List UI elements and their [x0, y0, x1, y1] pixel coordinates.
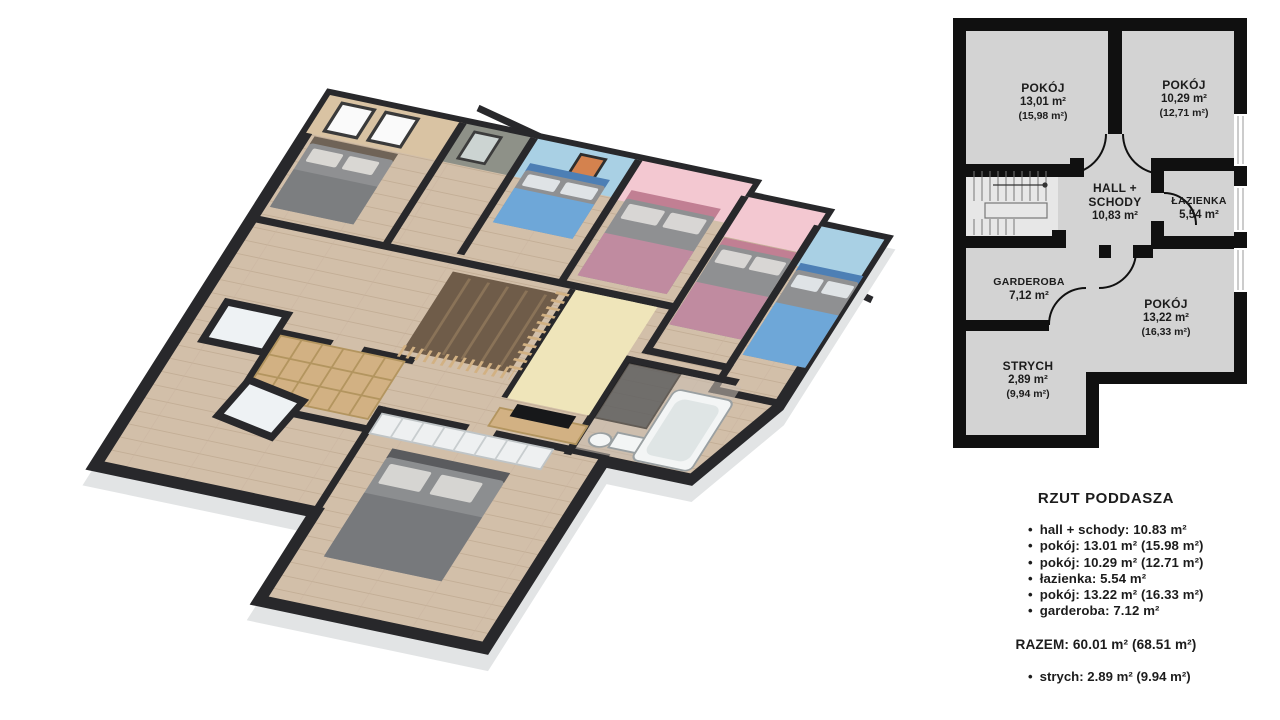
legend-item: garderoba: 7.12 m² — [1028, 603, 1226, 619]
plan-windows — [1234, 114, 1247, 292]
legend-list: hall + schody: 10.83 m² pokój: 13.01 m² … — [986, 522, 1226, 620]
legend-item: pokój: 13.22 m² (16.33 m²) — [1028, 587, 1226, 603]
iso-floor — [30, 95, 907, 689]
floorplan-2d: POKÓJ 13,01 m² (15,98 m²) POKÓJ 10,29 m²… — [953, 18, 1247, 448]
plan-label-pokoj-2: POKÓJ 10,29 m² (12,71 m²) — [1159, 78, 1208, 120]
legend: RZUT PODDASZA hall + schody: 10.83 m² po… — [986, 490, 1226, 684]
plan-label-lazienka: ŁAZIENKA 5,54 m² — [1171, 194, 1226, 222]
legend-item: łazienka: 5.54 m² — [1028, 571, 1226, 587]
page: POKÓJ 13,01 m² (15,98 m²) POKÓJ 10,29 m²… — [0, 0, 1280, 720]
floorplan-3d-render — [0, 0, 940, 720]
legend-total: RAZEM: 60.01 m² (68.51 m²) — [986, 637, 1226, 652]
legend-item: pokój: 13.01 m² (15.98 m²) — [1028, 538, 1226, 554]
legend-item: pokój: 10.29 m² (12.71 m²) — [1028, 555, 1226, 571]
plan-label-strych: STRYCH 2,89 m² (9,94 m²) — [1003, 359, 1054, 401]
legend-item: hall + schody: 10.83 m² — [1028, 522, 1226, 538]
floor — [39, 95, 900, 674]
plan-label-pokoj-3: POKÓJ 13,22 m² (16,33 m²) — [1141, 297, 1190, 339]
plan-label-hall: HALL + SCHODY 10,83 m² — [1088, 181, 1141, 223]
legend-title: RZUT PODDASZA — [986, 490, 1226, 507]
plan-label-pokoj-1: POKÓJ 13,01 m² (15,98 m²) — [1018, 81, 1067, 123]
plan-label-garderoba: GARDEROBA 7,12 m² — [993, 275, 1065, 303]
legend-extra-item: strych: 2.89 m² (9.94 m²) — [986, 669, 1226, 684]
floorplan-3d-svg — [0, 0, 940, 720]
